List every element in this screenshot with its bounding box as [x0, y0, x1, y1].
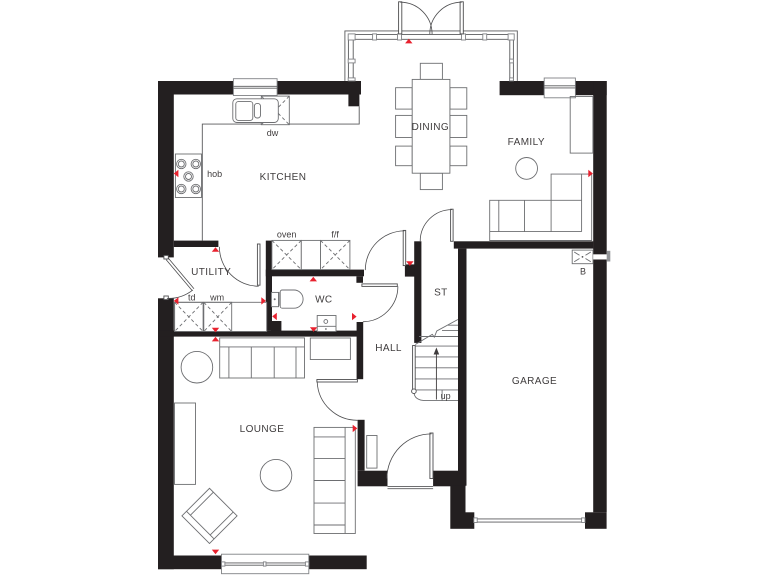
svg-text:up: up — [441, 391, 451, 401]
svg-text:LOUNGE: LOUNGE — [240, 424, 285, 435]
svg-text:KITCHEN: KITCHEN — [260, 172, 307, 183]
svg-text:WC: WC — [315, 295, 332, 306]
svg-text:DINING: DINING — [412, 122, 449, 133]
svg-text:UTILITY: UTILITY — [191, 267, 231, 278]
svg-text:dw: dw — [267, 128, 279, 138]
svg-text:f/f: f/f — [331, 229, 339, 239]
svg-text:FAMILY: FAMILY — [508, 137, 545, 148]
svg-text:ST: ST — [434, 287, 448, 298]
svg-text:B: B — [580, 267, 586, 277]
svg-text:HALL: HALL — [375, 343, 402, 354]
svg-text:wm: wm — [209, 292, 224, 302]
svg-text:hob: hob — [207, 169, 222, 179]
svg-text:GARAGE: GARAGE — [512, 376, 557, 387]
svg-text:oven: oven — [277, 229, 297, 239]
svg-text:td: td — [188, 292, 196, 302]
